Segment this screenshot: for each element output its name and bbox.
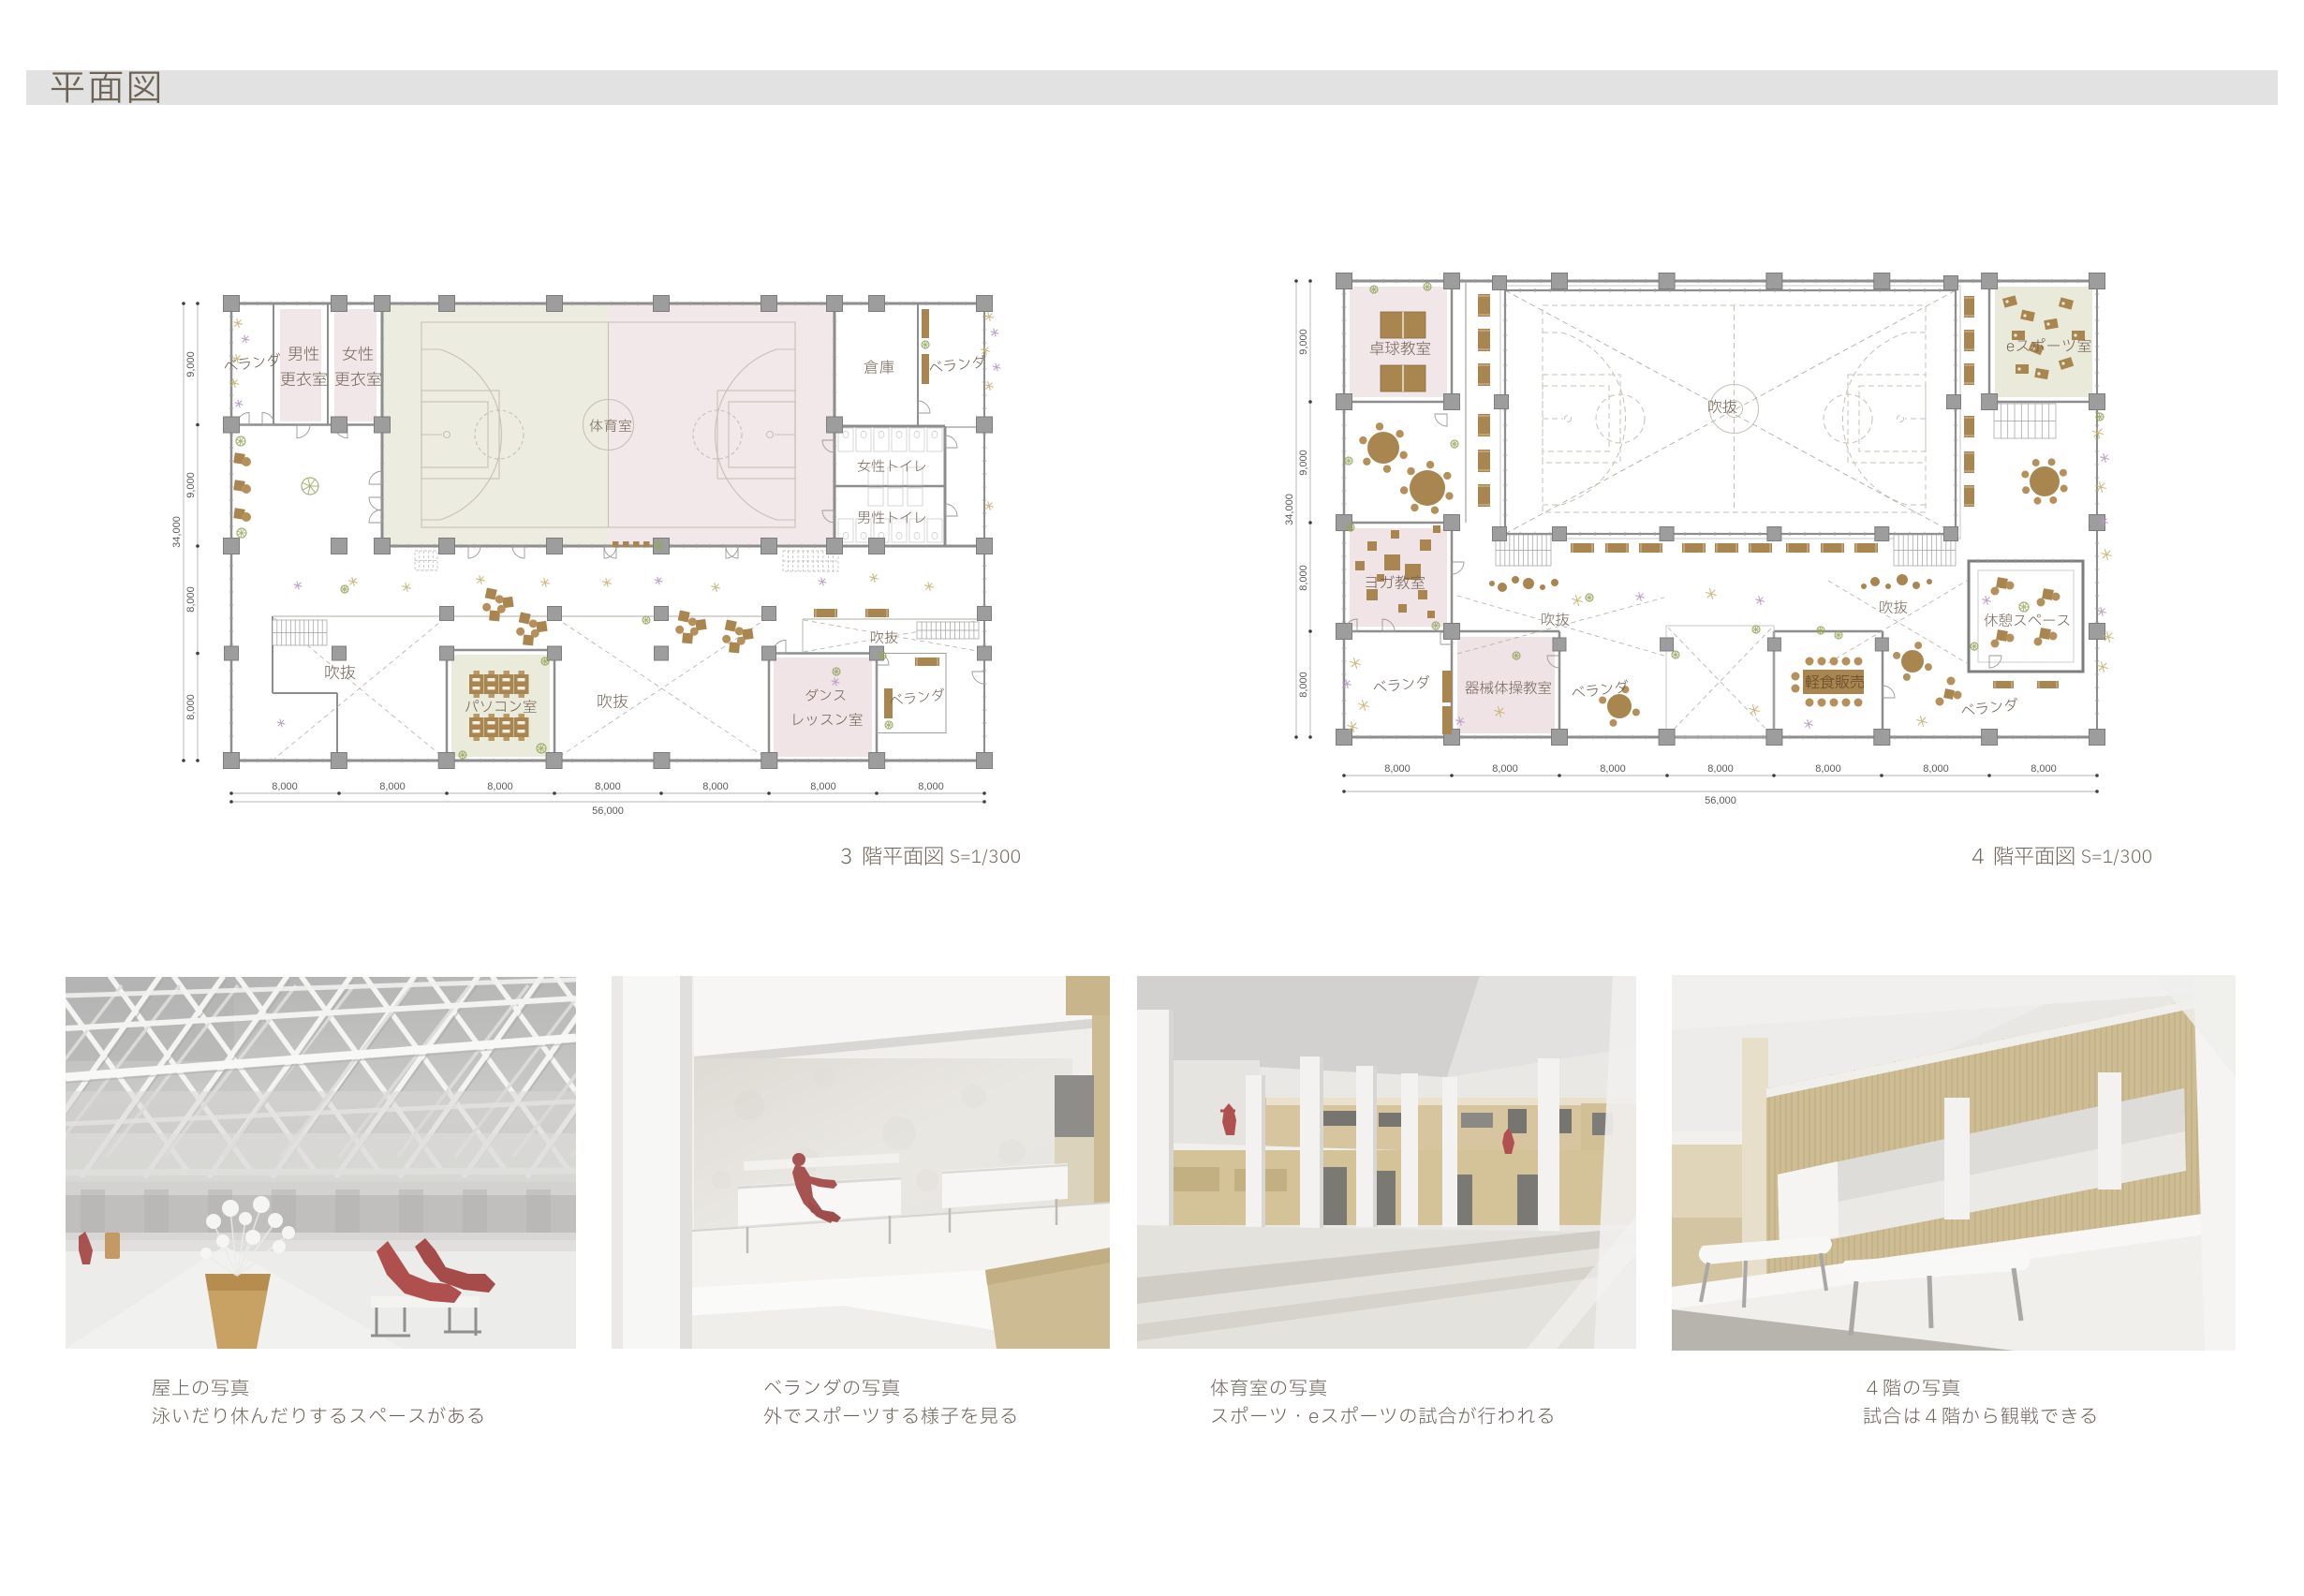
svg-text:9,000: 9,000 [185, 351, 197, 377]
svg-text:56,000: 56,000 [592, 805, 624, 817]
svg-text:56,000: 56,000 [1705, 795, 1736, 806]
svg-text:8,000: 8,000 [272, 781, 298, 792]
svg-text:9,000: 9,000 [185, 472, 197, 498]
svg-text:8,000: 8,000 [918, 781, 944, 792]
svg-text:8,000: 8,000 [2031, 763, 2057, 775]
svg-text:8,000: 8,000 [185, 586, 197, 613]
svg-text:8,000: 8,000 [810, 781, 836, 792]
svg-text:8,000: 8,000 [1298, 565, 1309, 591]
svg-text:8,000: 8,000 [595, 781, 621, 792]
svg-text:8,000: 8,000 [1492, 763, 1518, 775]
svg-text:8,000: 8,000 [487, 781, 513, 792]
svg-text:8,000: 8,000 [379, 781, 406, 792]
svg-text:9,000: 9,000 [1298, 450, 1309, 476]
svg-text:9,000: 9,000 [1298, 329, 1309, 355]
svg-text:8,000: 8,000 [1707, 763, 1734, 775]
svg-text:8,000: 8,000 [185, 694, 197, 720]
svg-text:8,000: 8,000 [1384, 763, 1410, 775]
svg-text:8,000: 8,000 [1298, 672, 1309, 698]
svg-text:8,000: 8,000 [1923, 763, 1949, 775]
svg-text:8,000: 8,000 [1600, 763, 1626, 775]
svg-text:34,000: 34,000 [171, 516, 183, 548]
svg-text:8,000: 8,000 [702, 781, 729, 792]
svg-text:8,000: 8,000 [1815, 763, 1841, 775]
svg-text:34,000: 34,000 [1284, 494, 1295, 525]
